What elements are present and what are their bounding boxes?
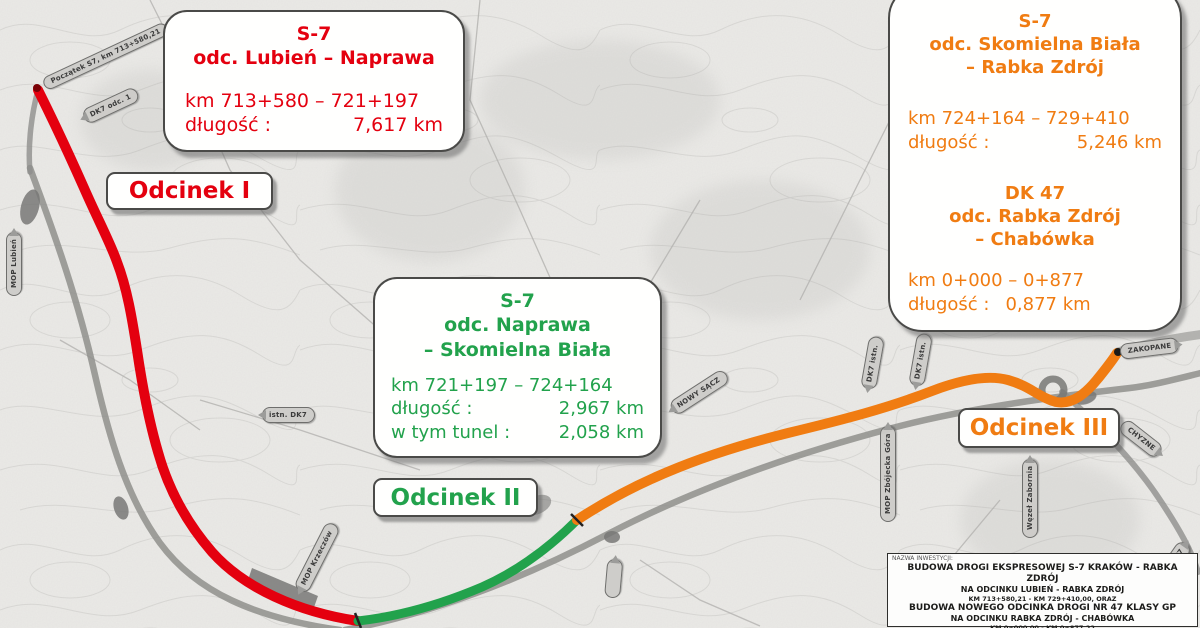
callout-section3-dk47-title: DK 47 odc. Rabka Zdrój – Chabówka [908, 182, 1162, 251]
map-canvas: Początek S7, km 713+580,21 DK7 odc. 1 MO… [0, 0, 1200, 628]
segment-name: odc. Skomielna Biała [908, 33, 1162, 56]
segment-name: odc. Rabka Zdrój [908, 205, 1162, 228]
length-value: 0,877 km [1005, 293, 1090, 316]
length-label: długość : [908, 131, 989, 154]
km-range: km 721+197 – 724+164 [391, 374, 613, 397]
callout-section3-s7-details: km 724+164 – 729+410 długość : 5,246 km [908, 107, 1162, 154]
section1-label: Odcinek I [106, 172, 273, 210]
segment-name: odc. Lubień – Naprawa [185, 46, 443, 70]
map-label-mop-lubien: MOP Lubień [6, 232, 22, 296]
investment-info-box: NAZWA INWESTYCJI: BUDOWA DROGI EKSPRESOW… [887, 553, 1198, 627]
tunnel-label: w tym tunel : [391, 421, 510, 444]
arrow-up-icon [9, 228, 19, 236]
km-range: km 713+580 – 721+197 [185, 89, 419, 114]
interchange-marker-body [609, 566, 619, 591]
route-start-marker [33, 84, 41, 92]
arrow-left-icon [258, 410, 266, 420]
info-caption: NAZWA INWESTYCJI: [892, 556, 1193, 563]
road-number: DK 47 [908, 182, 1162, 205]
arrow-down-icon [862, 384, 873, 394]
info-line: NA ODCINKU RABKA ZDRÓJ - CHABÓWKA [892, 614, 1193, 624]
callout-section2-title: S-7 odc. Naprawa – Skomielna Biała [391, 289, 644, 362]
callout-section3: S-7 odc. Skomielna Biała – Rabka Zdrój k… [888, 0, 1182, 332]
section2-label: Odcinek II [373, 478, 538, 517]
km-range: km 724+164 – 729+410 [908, 107, 1130, 130]
callout-section1-title: S-7 odc. Lubień – Naprawa [185, 22, 443, 71]
segment-name: odc. Naprawa [391, 313, 644, 337]
arrow-up-icon [883, 422, 893, 430]
info-line: KM 713+580,21 - KM 729+410,00, ORAZ [892, 595, 1193, 603]
road-number: S-7 [391, 289, 644, 313]
callout-section3-s7-title: S-7 odc. Skomielna Biała – Rabka Zdrój [908, 10, 1162, 79]
info-line: BUDOWA DROGI EKSPRESOWEJ S-7 KRAKÓW - RA… [892, 563, 1193, 586]
road-number: S-7 [185, 22, 443, 46]
length-label: długość : [185, 113, 271, 138]
arrow-down-icon [910, 381, 921, 391]
segment-name: – Chabówka [908, 228, 1162, 251]
callout-section2-details: km 721+197 – 724+164 długość : 2,967 km … [391, 374, 644, 444]
callout-section1: S-7 odc. Lubień – Naprawa km 713+580 – 7… [163, 10, 465, 152]
info-line: NA ODCINKU LUBIEŃ - RABKA ZDRÓJ [892, 585, 1193, 595]
map-label-istn-dk7: istn. DK7 [262, 407, 315, 423]
wezel-zabornia-label: Węzeł Zabornia [1026, 466, 1034, 530]
length-value: 7,617 km [353, 113, 443, 138]
callout-section2: S-7 odc. Naprawa – Skomielna Biała km 72… [373, 277, 662, 458]
callout-section1-details: km 713+580 – 721+197 długość : 7,617 km [185, 89, 443, 138]
segment-name: – Rabka Zdrój [908, 56, 1162, 79]
arrow-right-icon [1174, 339, 1183, 350]
km-range: km 0+000 – 0+877 [908, 269, 1084, 292]
istn-dk7-label: istn. DK7 [269, 411, 307, 419]
info-line: BUDOWA NOWEGO ODCINKA DROGI NR 47 KLASY … [892, 603, 1193, 614]
section3-label: Odcinek III [958, 408, 1120, 448]
segment-name: – Skomielna Biała [391, 338, 644, 362]
length-value: 2,967 km [559, 397, 644, 420]
length-value: 5,246 km [1077, 131, 1162, 154]
mop-lubien-label: MOP Lubień [10, 239, 18, 288]
road-number: S-7 [908, 10, 1162, 33]
callout-section3-dk47-details: km 0+000 – 0+877 długość : 0,877 km [908, 269, 1162, 316]
map-label-wezel-zabornia: Węzeł Zabornia [1022, 459, 1038, 538]
arrow-up-icon [1025, 455, 1035, 463]
dk7-istn-label: DK7 istn. [913, 341, 927, 380]
zakopane-label: ZAKOPANE [1127, 342, 1171, 355]
tunnel-value: 2,058 km [559, 421, 644, 444]
map-label-mop-zbojecka-gora: MOP Zbójecka Góra [880, 426, 896, 522]
length-label: długość : [908, 293, 989, 316]
info-line: KM 0+000,00 - KM 0+877,22 [892, 624, 1193, 628]
arrow-up-icon [610, 555, 621, 564]
length-label: długość : [391, 397, 472, 420]
mop-zbojecka-label: MOP Zbójecka Góra [884, 433, 892, 514]
dk7-istn-label: DK7 istn. [865, 344, 879, 383]
